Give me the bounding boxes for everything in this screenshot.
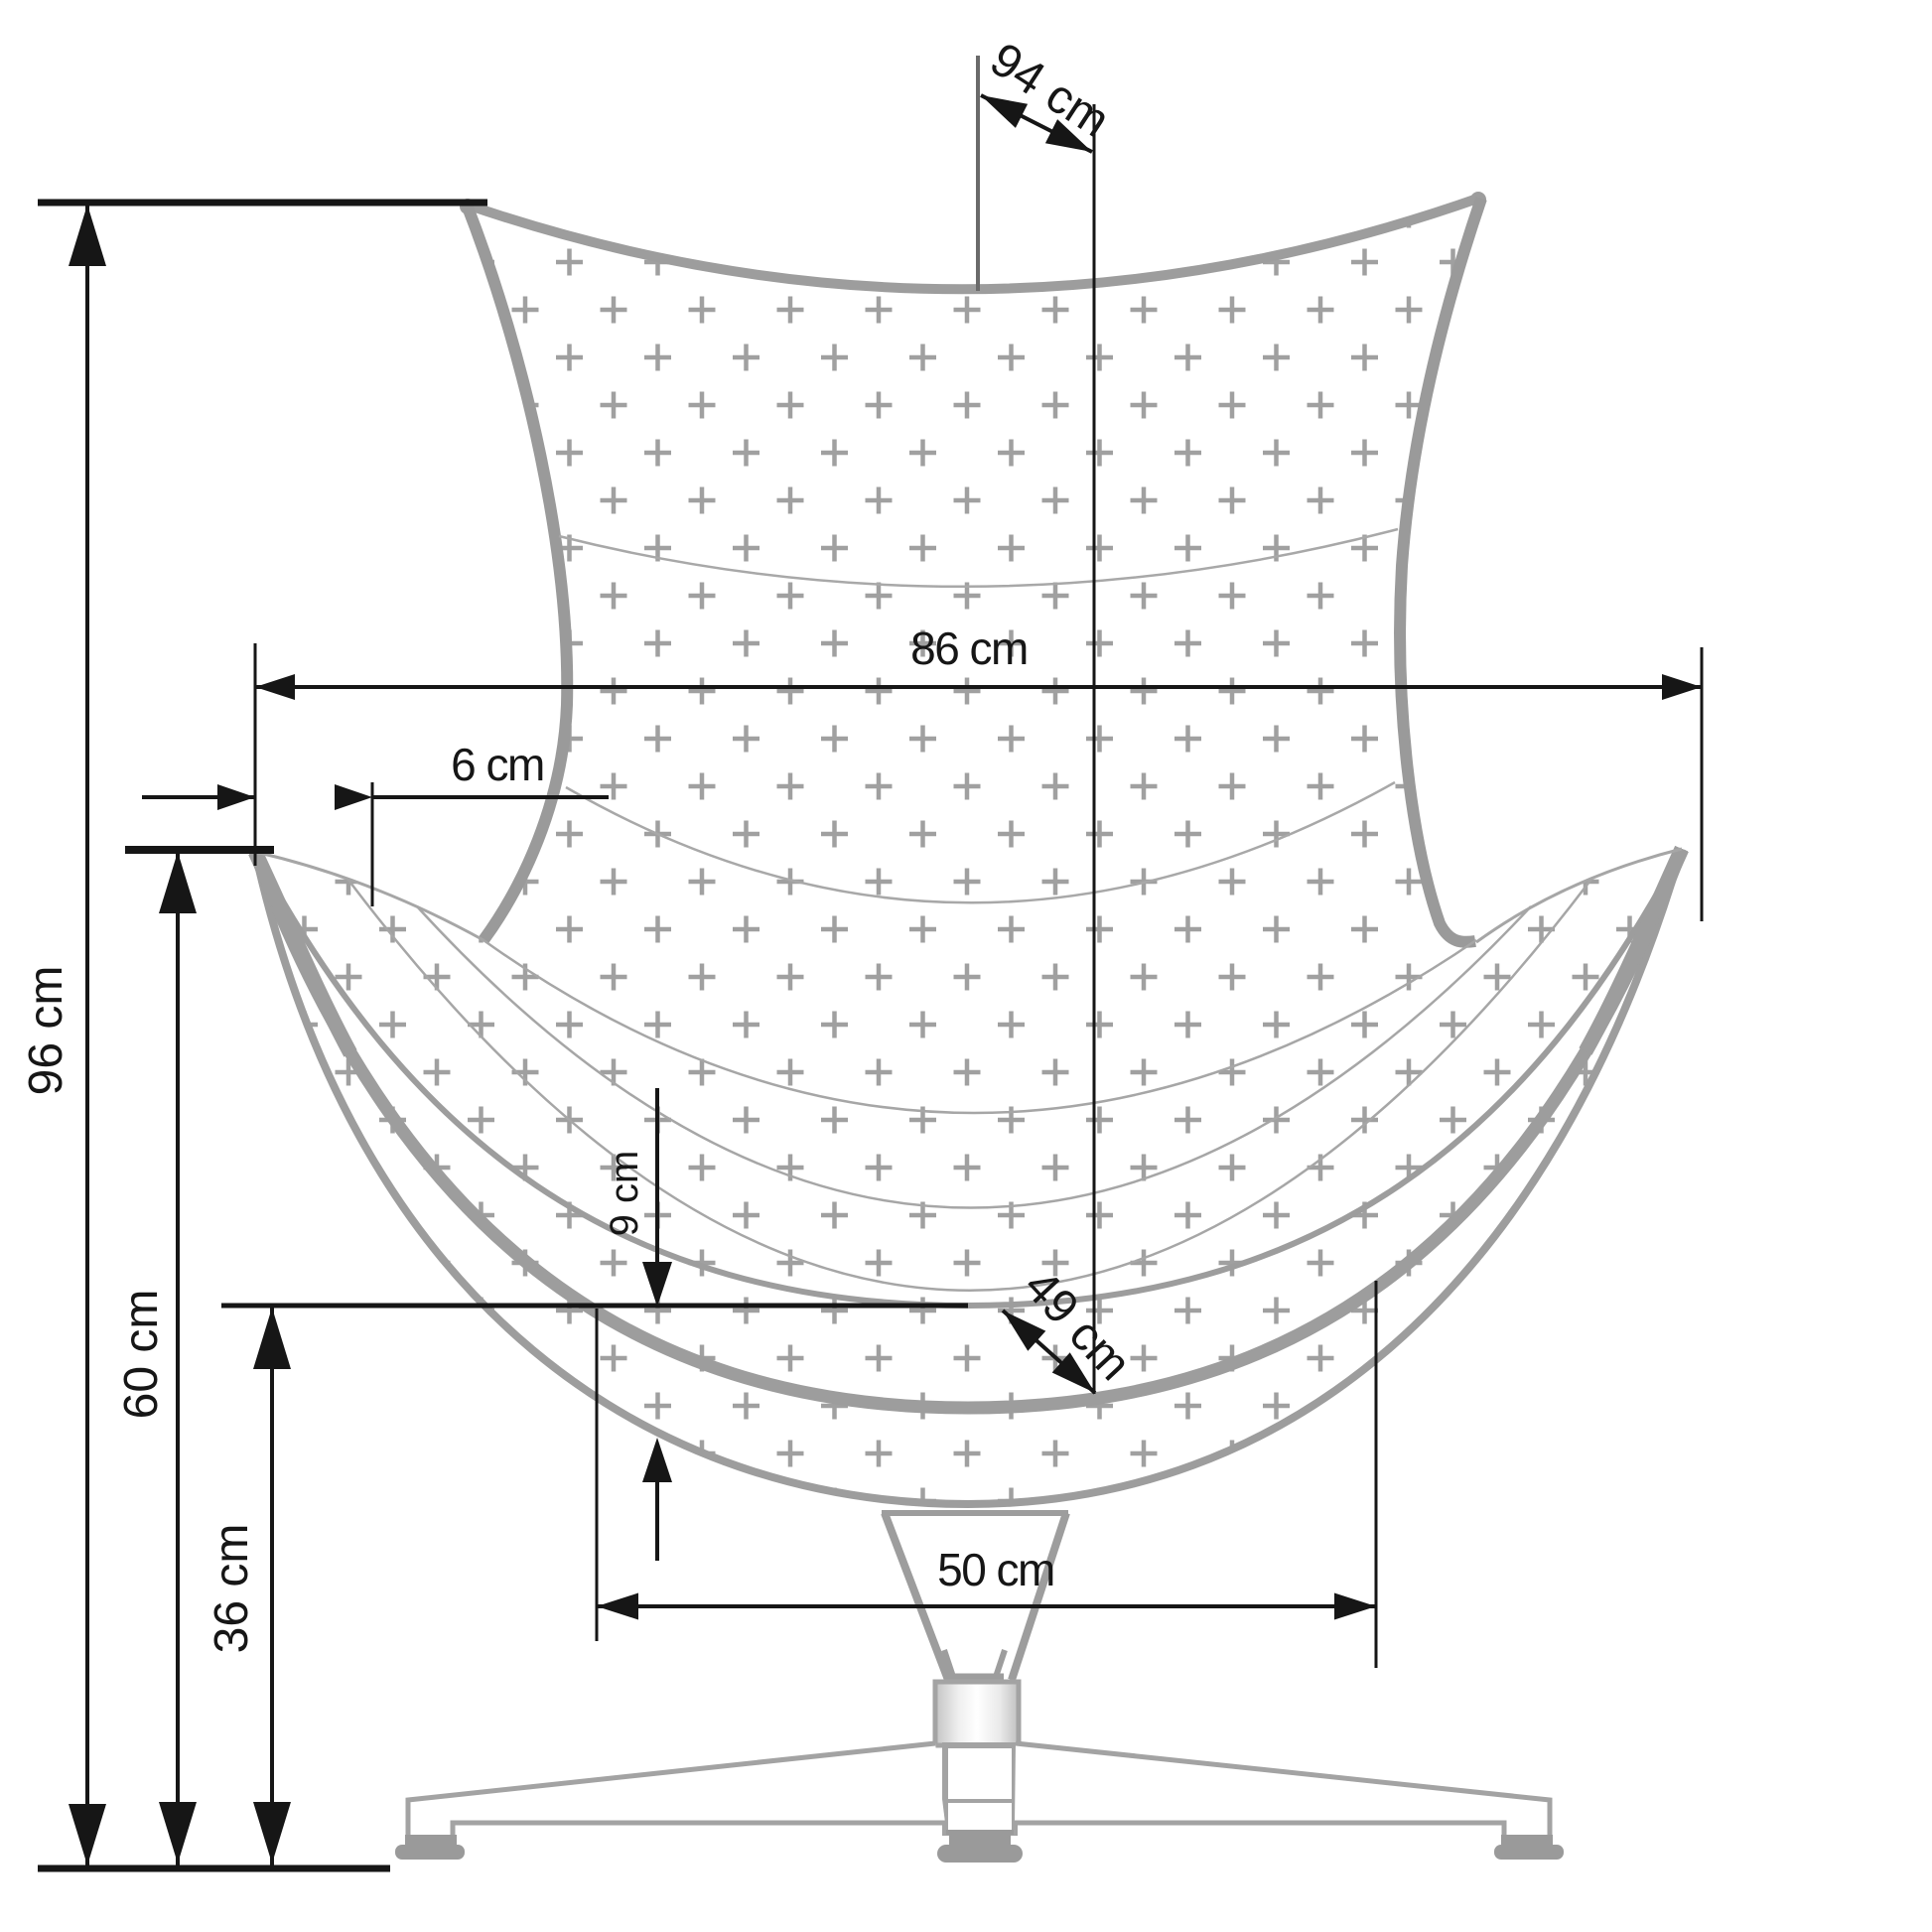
svg-text:6 cm: 6 cm	[451, 739, 544, 790]
svg-text:96 cm: 96 cm	[20, 966, 72, 1096]
svg-text:9 cm: 9 cm	[603, 1151, 646, 1237]
svg-text:50 cm: 50 cm	[937, 1544, 1054, 1595]
svg-text:86 cm: 86 cm	[910, 622, 1028, 674]
svg-text:36 cm: 36 cm	[206, 1524, 258, 1654]
svg-text:60 cm: 60 cm	[115, 1290, 168, 1420]
